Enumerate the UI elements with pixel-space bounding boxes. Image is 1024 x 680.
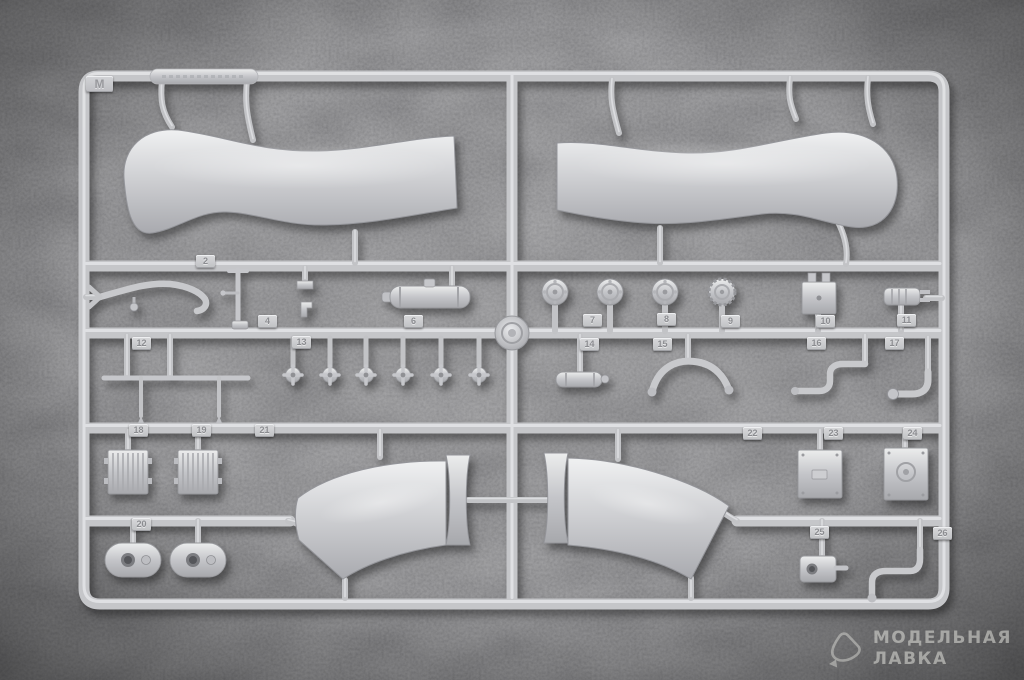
watermark-text: МОДЕЛЬНАЯ ЛАВКА xyxy=(873,628,1012,671)
part-number-tab: 10 xyxy=(816,315,835,328)
part-number-tab: 6 xyxy=(404,315,423,328)
part-number-tab: 18 xyxy=(129,424,148,437)
sprue-photo: M 2 4 6 7 8 9 10 11 12 13 14 15 16 17 18… xyxy=(0,0,1024,680)
part-number-tab: 4 xyxy=(258,315,277,328)
part-number-tab: 7 xyxy=(583,314,602,327)
part-number-tab: 20 xyxy=(132,518,151,531)
part-number-tab: 2 xyxy=(196,255,215,268)
photo-canvas xyxy=(0,0,1024,680)
part-radiator-box-2 xyxy=(174,450,222,494)
part-number-tab: 9 xyxy=(721,315,740,328)
part-number-tab: 26 xyxy=(933,527,952,540)
part-number-tab: 13 xyxy=(292,336,311,349)
part-number-tab: 14 xyxy=(580,338,599,351)
watermark-line2: ЛАВКА xyxy=(873,649,1012,670)
part-hatch-box xyxy=(798,450,842,498)
molded-label-plate xyxy=(150,69,258,84)
part-number-tab: 21 xyxy=(255,424,274,437)
part-number-tab: 17 xyxy=(885,337,904,350)
sprue-letter-tab: M xyxy=(86,76,113,92)
watermark: МОДЕЛЬНАЯ ЛАВКА xyxy=(826,628,1012,671)
part-number-tab: 8 xyxy=(657,313,676,326)
part-oval-pad-2 xyxy=(170,543,226,577)
part-number-tab: 15 xyxy=(653,338,672,351)
watermark-line1: МОДЕЛЬНАЯ xyxy=(873,628,1012,649)
part-oval-pad-1 xyxy=(105,543,161,577)
part-number-tab: 19 xyxy=(192,424,211,437)
model-lavka-logo-icon xyxy=(826,628,864,670)
part-number-tab: 16 xyxy=(807,337,826,350)
part-number-tab: 25 xyxy=(810,526,829,539)
part-emblem-box xyxy=(884,448,928,500)
part-number-tab: 11 xyxy=(897,314,916,327)
runner-hub xyxy=(495,316,529,350)
part-duct-right xyxy=(557,132,897,227)
part-number-tab: 23 xyxy=(824,427,843,440)
part-radiator-box-1 xyxy=(104,450,152,494)
part-number-tab: 22 xyxy=(743,427,762,440)
part-number-tab: 12 xyxy=(132,337,151,350)
part-number-tab: 24 xyxy=(903,427,922,440)
